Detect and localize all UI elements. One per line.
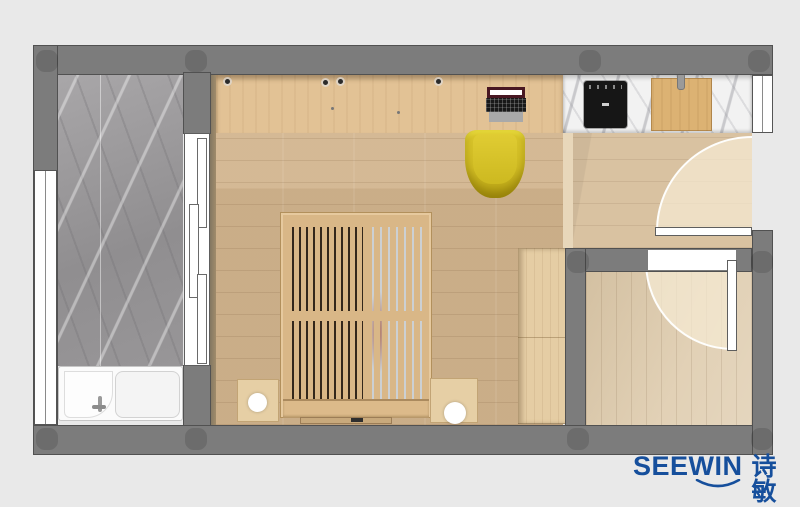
laptop-palmrest <box>489 112 523 122</box>
bathroom-sliding-door <box>184 133 210 366</box>
bathtub <box>58 366 183 421</box>
bathroom-floor-seam <box>100 72 101 366</box>
desk-knob-4 <box>436 79 441 84</box>
bed-slats-right <box>366 227 427 399</box>
floor-plan: SEEWIN 诗敏 <box>0 0 800 507</box>
window-top-right <box>752 75 773 133</box>
small-room-door-leaf <box>727 260 737 351</box>
desk-mark-2 <box>397 111 400 114</box>
laptop-keyboard <box>486 98 526 112</box>
wall-stud-marker <box>185 428 207 450</box>
wall-stud-marker <box>579 50 601 72</box>
bed-base-step <box>300 417 392 424</box>
bathtub-basin <box>115 371 180 418</box>
entry-door-leaf <box>655 227 752 236</box>
wall-top <box>33 45 773 75</box>
desk-chair-seat <box>473 134 517 184</box>
wall-bathroom-partition-bottom <box>183 365 211 426</box>
wall-stud-marker <box>36 50 58 72</box>
bed-slats-left <box>287 227 363 399</box>
wall-stud-marker <box>36 428 58 450</box>
wall-stud-marker <box>751 251 773 273</box>
brand-logo: SEEWIN 诗敏 <box>633 453 793 493</box>
floorplan-page: { "brand": { "name": "SEEWIN", "name_cn"… <box>0 0 800 507</box>
window-left <box>34 170 57 425</box>
brand-logo-chinese: 诗敏 <box>752 455 793 505</box>
window-left-mullion <box>45 171 46 424</box>
wall-stud-marker <box>751 428 773 450</box>
bathtub-faucet-icon <box>98 396 102 412</box>
lamp-right <box>444 402 466 424</box>
window-top-right-mullion <box>762 76 763 132</box>
small-room-door-opening <box>648 250 736 270</box>
wall-stud-marker <box>567 251 589 273</box>
bathroom-floor <box>57 72 183 366</box>
desk-mark-1 <box>331 107 334 110</box>
wardrobe-seam <box>518 337 565 338</box>
cooktop-controls-icon <box>589 85 622 89</box>
cooktop-display <box>602 103 609 106</box>
logo-swoosh-icon <box>695 479 741 491</box>
wall-stud-marker <box>185 50 207 72</box>
sliding-door-panel-3 <box>197 274 207 364</box>
bed-foot-rail <box>283 399 429 418</box>
hallway-threshold-strip <box>563 133 573 248</box>
wall-bathroom-partition-top <box>183 72 211 134</box>
bathtub-faucet-handle-icon <box>92 405 106 409</box>
cutting-board-handle-icon <box>677 73 685 90</box>
wall-stud-marker <box>748 50 770 72</box>
bed-slatted-platform <box>280 212 432 418</box>
bed-base-latch <box>351 418 363 422</box>
cooktop <box>584 81 627 128</box>
desk-knob-2 <box>323 80 328 85</box>
lamp-left <box>248 393 267 412</box>
wall-small-room-left <box>565 248 586 426</box>
desk-knob-1 <box>225 79 230 84</box>
wall-stud-marker <box>567 428 589 450</box>
desk-knob-3 <box>338 79 343 84</box>
wardrobe-cabinet <box>518 248 565 424</box>
laptop-screen <box>487 87 525 98</box>
bathtub-seat <box>64 371 113 418</box>
brand-logo-text: SEEWIN <box>633 453 743 480</box>
